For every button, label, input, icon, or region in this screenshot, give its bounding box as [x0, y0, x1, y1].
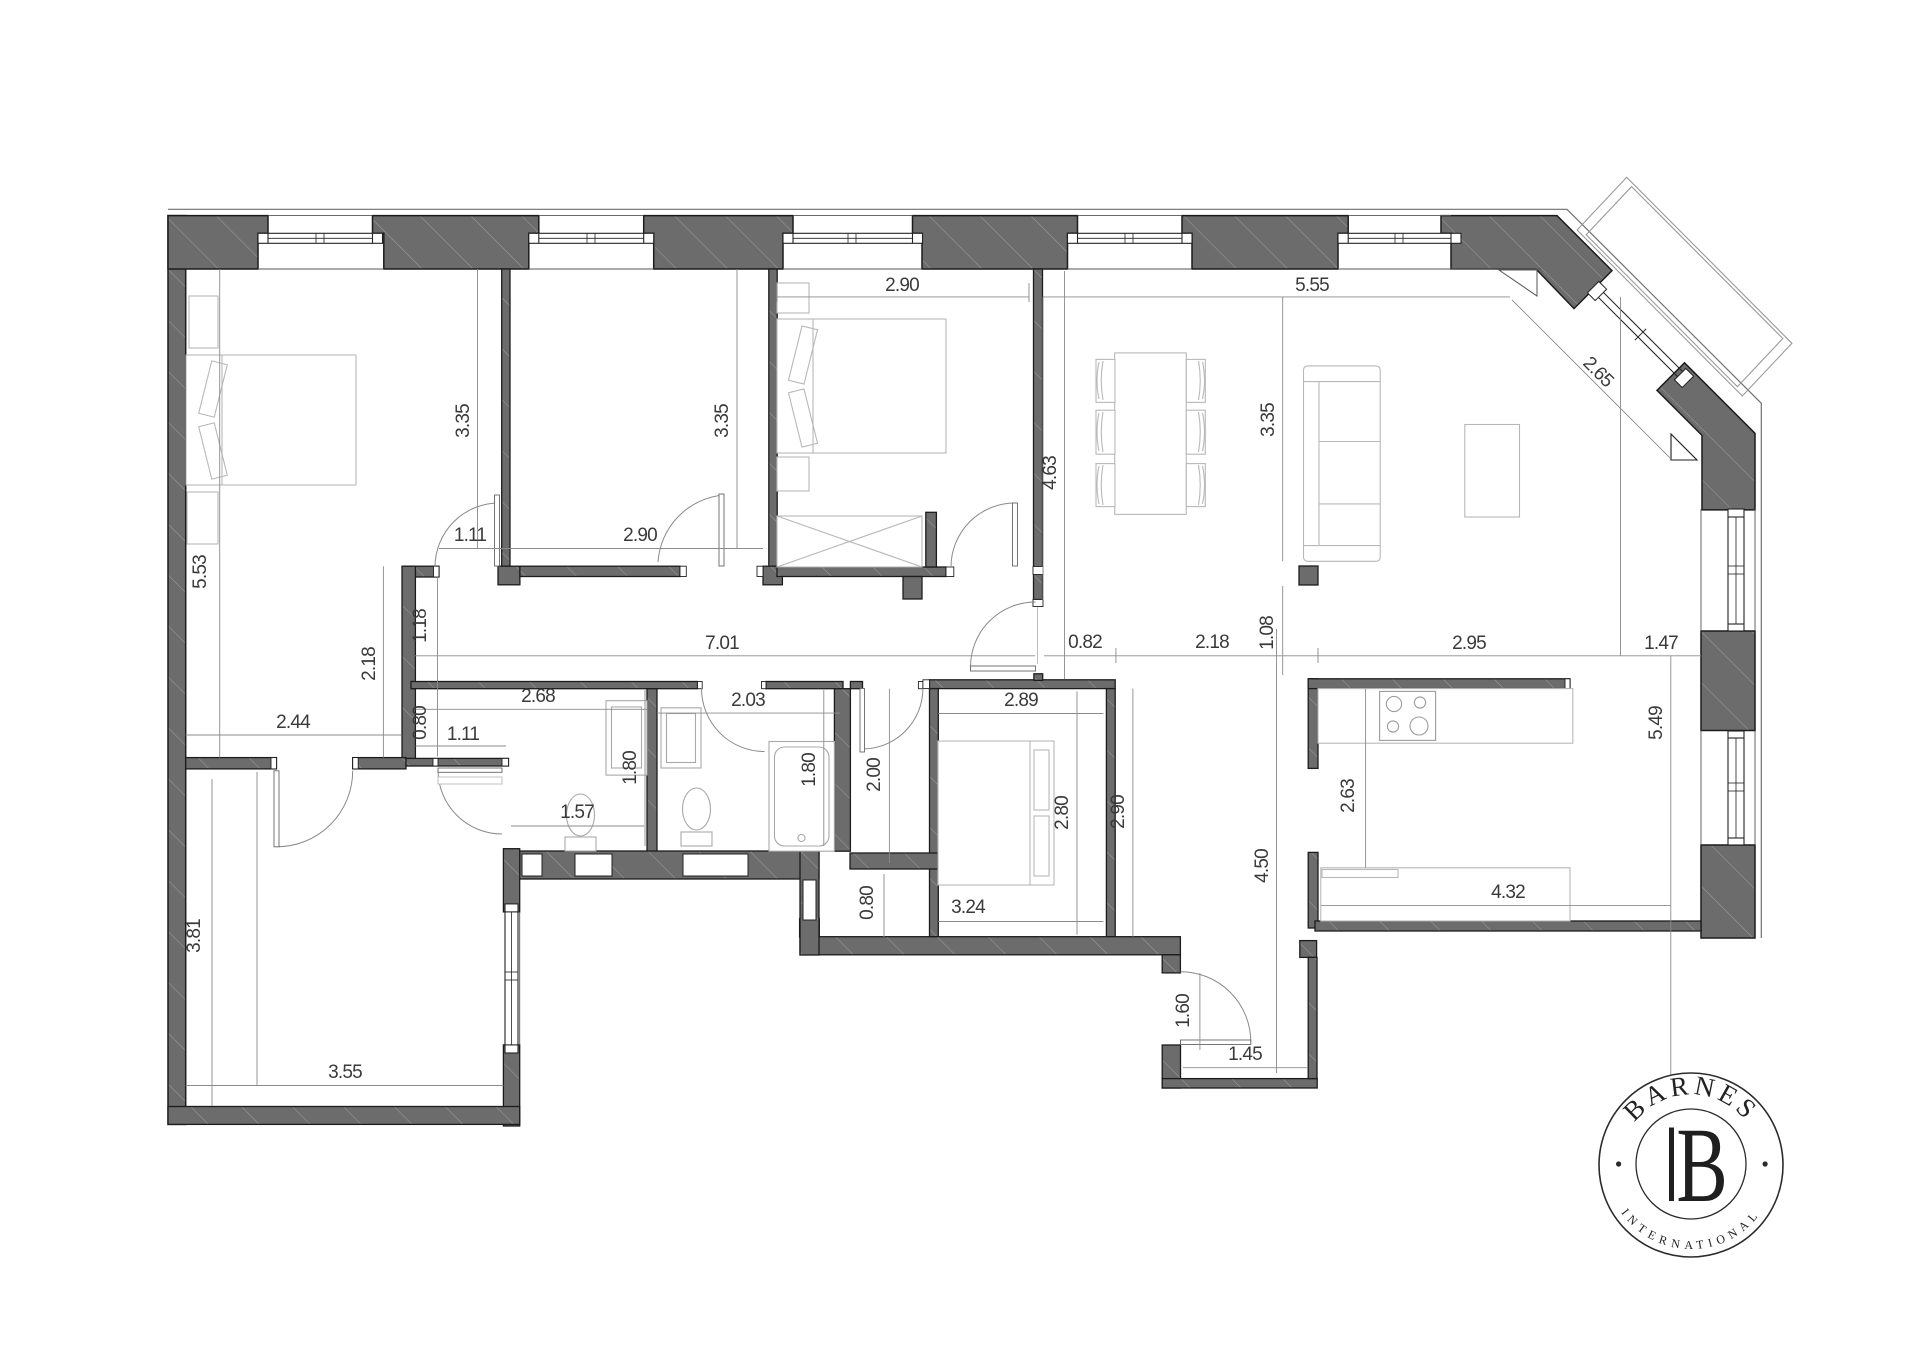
svg-text:2.18: 2.18	[1195, 632, 1229, 653]
svg-text:1.47: 1.47	[1644, 633, 1678, 654]
svg-text:5.53: 5.53	[190, 555, 211, 589]
svg-text:2.80: 2.80	[1052, 796, 1073, 830]
svg-text:1.11: 1.11	[447, 724, 480, 745]
svg-text:2.89: 2.89	[1004, 690, 1038, 711]
svg-text:2.90: 2.90	[623, 525, 657, 546]
svg-text:5.55: 5.55	[1295, 275, 1329, 296]
svg-text:3.55: 3.55	[328, 1062, 362, 1083]
svg-text:2.03: 2.03	[731, 690, 765, 711]
svg-text:4.32: 4.32	[1491, 882, 1525, 903]
svg-text:3.81: 3.81	[184, 919, 205, 953]
svg-text:2.68: 2.68	[521, 686, 555, 707]
svg-text:4.63: 4.63	[1040, 456, 1061, 490]
svg-text:3.35: 3.35	[712, 404, 733, 438]
svg-text:0.82: 0.82	[1068, 632, 1102, 653]
svg-text:1.80: 1.80	[620, 751, 641, 785]
svg-text:5.49: 5.49	[1646, 706, 1667, 740]
svg-text:2.90: 2.90	[885, 275, 919, 296]
svg-text:4.50: 4.50	[1252, 849, 1273, 883]
svg-text:7.01: 7.01	[705, 633, 739, 654]
svg-text:2.95: 2.95	[1452, 633, 1486, 654]
svg-text:1.08: 1.08	[1257, 616, 1278, 650]
svg-text:1.11: 1.11	[454, 525, 487, 546]
svg-text:B: B	[1676, 1107, 1727, 1225]
svg-text:3.24: 3.24	[951, 897, 986, 918]
svg-text:2.63: 2.63	[1338, 779, 1359, 813]
svg-text:1.45: 1.45	[1228, 1044, 1262, 1065]
svg-text:1.18: 1.18	[410, 609, 431, 643]
svg-text:2.18: 2.18	[359, 647, 380, 681]
svg-text:0.80: 0.80	[857, 886, 878, 920]
svg-text:2.44: 2.44	[276, 712, 311, 733]
svg-text:2.00: 2.00	[864, 758, 885, 792]
svg-text:2.90: 2.90	[1108, 795, 1129, 829]
svg-text:1.60: 1.60	[1173, 994, 1194, 1028]
svg-text:3.35: 3.35	[453, 404, 474, 438]
svg-text:1.80: 1.80	[799, 753, 820, 787]
svg-text:1.57: 1.57	[560, 802, 594, 823]
svg-text:3.35: 3.35	[1258, 403, 1279, 437]
svg-text:0.80: 0.80	[410, 706, 431, 740]
